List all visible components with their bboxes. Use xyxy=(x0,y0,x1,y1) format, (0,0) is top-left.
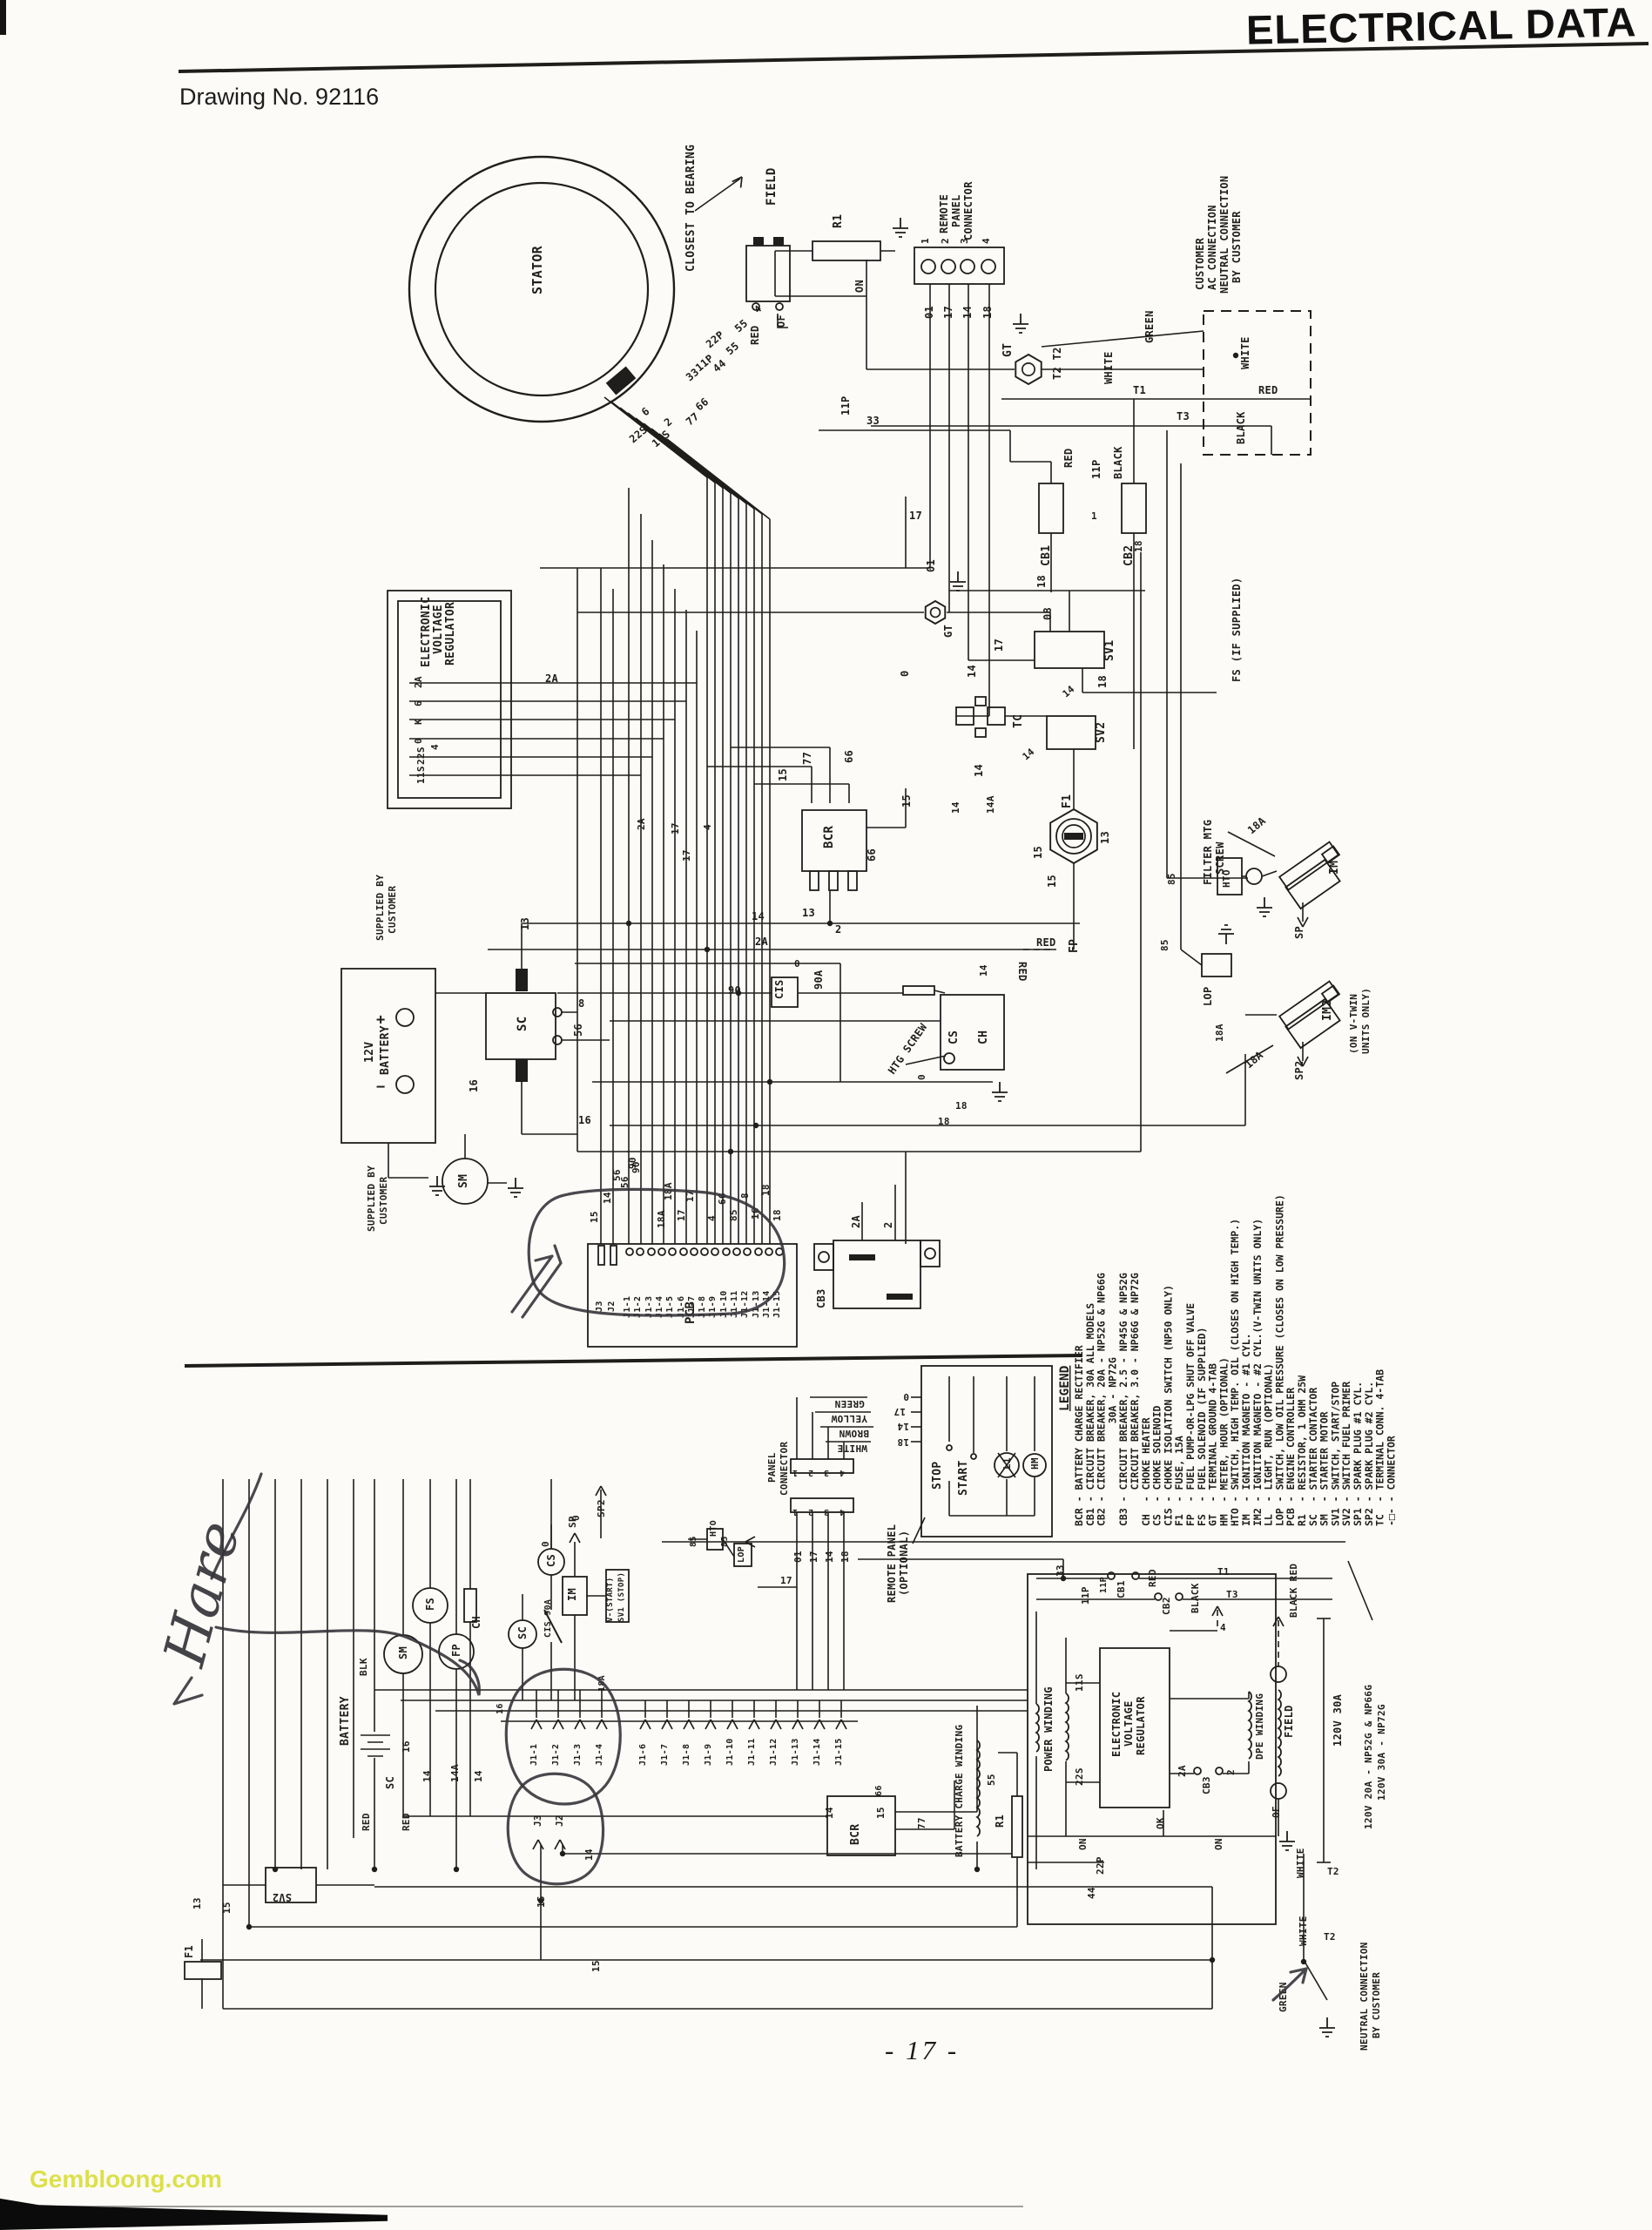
svg-text:01: 01 xyxy=(792,1551,804,1563)
svg-text:SP: SP xyxy=(1293,926,1305,939)
svg-text:14: 14 xyxy=(824,1551,835,1563)
svg-text:66: 66 xyxy=(843,750,855,763)
svg-text:SV2: SV2 xyxy=(1095,722,1108,743)
page-number: - 17 - xyxy=(885,2035,959,2066)
svg-text:LEGEND: LEGEND xyxy=(1058,1365,1072,1411)
schematic-canvas: STATORCLOSEST TO BEARINGFIELDREDOF55422S… xyxy=(0,0,1652,2230)
svg-text:3: 3 xyxy=(959,238,970,244)
svg-text:15: 15 xyxy=(589,1211,600,1223)
svg-text:J1-13: J1-13 xyxy=(791,1738,800,1766)
svg-text:SM: SM xyxy=(397,1646,409,1659)
svg-text:18: 18 xyxy=(760,1184,772,1196)
svg-text:14A: 14A xyxy=(449,1764,461,1782)
svg-text:IM: IM xyxy=(1328,861,1341,875)
svg-text:SV1 (STOP): SV1 (STOP) xyxy=(617,1572,626,1622)
svg-text:LOP: LOP xyxy=(1202,986,1214,1006)
svg-text:120V 20A - NP52G & NP66G: 120V 20A - NP52G & NP66G xyxy=(1363,1685,1374,1829)
svg-text:WHITE: WHITE xyxy=(1295,1848,1306,1878)
svg-text:BLACK: BLACK xyxy=(1190,1583,1201,1613)
svg-text:17: 17 xyxy=(909,510,922,522)
svg-text:14: 14 xyxy=(897,1421,909,1432)
svg-text:BY CUSTOMER: BY CUSTOMER xyxy=(1231,211,1243,283)
svg-text:1: 1 xyxy=(920,238,931,244)
svg-text:17: 17 xyxy=(670,822,681,835)
svg-text:REMOTE: REMOTE xyxy=(938,194,950,233)
svg-text:15: 15 xyxy=(221,1902,233,1914)
svg-text:77: 77 xyxy=(916,1817,927,1829)
svg-text:R1: R1 xyxy=(994,1814,1006,1828)
svg-text:18: 18 xyxy=(1096,675,1109,688)
svg-text:FIELD: FIELD xyxy=(1283,1705,1295,1738)
svg-text:J1-1: J1-1 xyxy=(529,1744,539,1766)
svg-text:RED: RED xyxy=(749,325,761,345)
svg-text:−: − xyxy=(376,1078,386,1096)
svg-text:BATTERY CHARGE WINDING: BATTERY CHARGE WINDING xyxy=(954,1725,965,1857)
svg-text:4: 4 xyxy=(752,303,765,315)
svg-text:55: 55 xyxy=(724,340,742,357)
svg-text:18A: 18A xyxy=(1245,814,1269,837)
svg-text:BLACK: BLACK xyxy=(1112,446,1124,479)
svg-text:66: 66 xyxy=(874,1785,884,1796)
svg-text:SC: SC xyxy=(516,1626,529,1639)
svg-text:CH: CH xyxy=(977,1031,990,1044)
svg-text:START: START xyxy=(957,1460,970,1496)
svg-text:Hare: Hare xyxy=(151,1514,253,1673)
svg-text:F1: F1 xyxy=(1061,794,1074,808)
svg-text:14: 14 xyxy=(966,665,978,678)
svg-text:14A: 14A xyxy=(985,795,996,814)
svg-text:85: 85 xyxy=(689,1536,698,1547)
watermark: Gembloong.com xyxy=(30,2166,222,2193)
svg-text:J1-11: J1-11 xyxy=(747,1738,757,1766)
svg-text:J1-6: J1-6 xyxy=(638,1744,648,1766)
svg-text:REGULATOR: REGULATOR xyxy=(444,602,457,666)
svg-text:ON: ON xyxy=(853,280,866,293)
svg-text:OK: OK xyxy=(1155,1817,1166,1829)
svg-text:BLK: BLK xyxy=(358,1658,369,1676)
svg-text:18: 18 xyxy=(955,1100,968,1112)
svg-text:RED: RED xyxy=(1016,962,1028,982)
svg-text:CB1: CB1 xyxy=(1040,545,1053,566)
svg-text:J1-8: J1-8 xyxy=(682,1744,691,1766)
svg-text:15: 15 xyxy=(536,1895,547,1908)
svg-text:BY CUSTOMER: BY CUSTOMER xyxy=(1371,1972,1382,2038)
svg-text:AC CONNECTION: AC CONNECTION xyxy=(1206,205,1218,290)
svg-text:BATTERY: BATTERY xyxy=(339,1696,352,1746)
svg-text:18A: 18A xyxy=(656,1210,667,1228)
svg-text:YELLOW: YELLOW xyxy=(831,1413,867,1424)
svg-text:J1-14: J1-14 xyxy=(813,1738,822,1766)
svg-text:J3: J3 xyxy=(532,1814,543,1827)
scan-artifact-corner xyxy=(0,0,6,35)
svg-text:GREEN: GREEN xyxy=(1143,310,1156,343)
svg-text:0: 0 xyxy=(916,1074,927,1080)
svg-text:11P: 11P xyxy=(1090,459,1102,479)
svg-text:WHITE: WHITE xyxy=(1102,351,1115,384)
svg-text:SC: SC xyxy=(516,1017,529,1031)
svg-text:14: 14 xyxy=(950,801,961,814)
svg-text:RED: RED xyxy=(401,1813,412,1831)
svg-text:22P: 22P xyxy=(1095,1856,1106,1875)
svg-text:90A: 90A xyxy=(813,970,825,990)
svg-text:8: 8 xyxy=(578,997,585,1010)
svg-text:56: 56 xyxy=(619,1176,630,1188)
svg-text:18A: 18A xyxy=(1214,1024,1225,1042)
svg-text:CB2: CB2 xyxy=(1161,1597,1172,1615)
svg-text:(OPTIONAL): (OPTIONAL) xyxy=(898,1531,910,1596)
svg-text:VOLTAGE: VOLTAGE xyxy=(1123,1700,1135,1747)
svg-text:SP: SP xyxy=(567,1516,578,1528)
svg-text:16: 16 xyxy=(468,1079,480,1092)
svg-text:T3: T3 xyxy=(1177,410,1190,422)
svg-text:ON: ON xyxy=(1077,1838,1089,1850)
svg-text:14: 14 xyxy=(1061,683,1077,699)
svg-text:18: 18 xyxy=(772,1209,783,1221)
svg-text:CH: CH xyxy=(470,1616,482,1629)
svg-text:WHITE: WHITE xyxy=(1298,1916,1309,1946)
svg-text:CB1: CB1 xyxy=(1116,1580,1127,1598)
svg-text:HTO: HTO xyxy=(709,1520,718,1537)
svg-text:HTG SCREW: HTG SCREW xyxy=(886,1021,930,1077)
svg-text:SP2: SP2 xyxy=(1293,1060,1305,1080)
svg-text:2A: 2A xyxy=(1177,1765,1188,1777)
svg-text:14: 14 xyxy=(961,306,974,319)
svg-text:CUSTOMER: CUSTOMER xyxy=(378,1177,389,1225)
svg-text:33: 33 xyxy=(1055,1564,1066,1577)
svg-text:4: 4 xyxy=(839,1507,845,1517)
svg-text:15: 15 xyxy=(900,794,913,808)
svg-text:VOLTAGE: VOLTAGE xyxy=(432,605,445,654)
svg-text:T2 T2: T2 T2 xyxy=(1051,347,1063,380)
svg-text:8: 8 xyxy=(739,1193,751,1199)
svg-text:13: 13 xyxy=(192,1897,203,1909)
svg-text:85: 85 xyxy=(1166,873,1177,885)
svg-text:PANEL: PANEL xyxy=(950,194,962,227)
svg-text:CONNECTOR: CONNECTOR xyxy=(779,1442,790,1496)
svg-text:CONNECTOR: CONNECTOR xyxy=(962,181,974,240)
svg-text:14: 14 xyxy=(824,1807,835,1819)
svg-text:2: 2 xyxy=(808,1507,813,1517)
svg-text:14: 14 xyxy=(583,1848,595,1861)
svg-text:ELECTRONIC: ELECTRONIC xyxy=(420,597,433,667)
svg-text:17: 17 xyxy=(676,1209,687,1221)
svg-text:NEUTRAL CONNECTION: NEUTRAL CONNECTION xyxy=(1359,1942,1370,2051)
svg-text:T3: T3 xyxy=(1226,1589,1238,1600)
svg-text:11P: 11P xyxy=(1080,1586,1091,1605)
svg-text:T1: T1 xyxy=(1133,384,1146,396)
svg-text:RED: RED xyxy=(1036,936,1056,949)
svg-text:HTO: HTO xyxy=(1221,869,1232,888)
svg-text:15: 15 xyxy=(1046,875,1058,888)
svg-text:66: 66 xyxy=(866,848,878,862)
svg-text:17: 17 xyxy=(993,639,1005,652)
svg-text:REMOTE PANEL: REMOTE PANEL xyxy=(886,1524,898,1603)
svg-text:HM: HM xyxy=(1029,1457,1041,1470)
svg-text:IM: IM xyxy=(566,1588,578,1601)
svg-text:BLACK RED: BLACK RED xyxy=(1288,1564,1299,1618)
svg-text:BLACK: BLACK xyxy=(1235,411,1247,444)
svg-text:SV2: SV2 xyxy=(272,1891,292,1903)
svg-text:J1-7: J1-7 xyxy=(660,1744,670,1766)
svg-text:4: 4 xyxy=(1220,1622,1226,1633)
svg-text:FP: FP xyxy=(450,1644,462,1657)
svg-text:J1-10: J1-10 xyxy=(725,1738,735,1766)
svg-text:85: 85 xyxy=(1159,939,1170,951)
svg-text:01: 01 xyxy=(923,306,935,319)
svg-text:CUSTOMER: CUSTOMER xyxy=(1194,237,1206,290)
svg-text:CIS: CIS xyxy=(773,979,786,999)
svg-text:BCR: BCR xyxy=(822,826,836,848)
svg-text:PANEL: PANEL xyxy=(766,1452,778,1483)
svg-text:F1: F1 xyxy=(183,1945,195,1958)
svg-text:22S: 22S xyxy=(415,747,427,765)
svg-text:85: 85 xyxy=(720,1536,730,1547)
svg-text:SM: SM xyxy=(457,1174,470,1188)
svg-text:12V: 12V xyxy=(363,1042,376,1063)
svg-text:FILTER MTG: FILTER MTG xyxy=(1202,820,1214,885)
svg-text:90: 90 xyxy=(630,1161,642,1173)
svg-text:J1-15: J1-15 xyxy=(834,1738,844,1766)
svg-text:-□- - CONNECTOR: -□- - CONNECTOR xyxy=(1385,1436,1397,1526)
svg-text:2: 2 xyxy=(808,1468,813,1477)
svg-text:14: 14 xyxy=(602,1192,613,1204)
svg-text:16: 16 xyxy=(578,1114,591,1126)
svg-text:55: 55 xyxy=(732,317,751,334)
svg-text:CB3: CB3 xyxy=(1201,1776,1212,1794)
svg-text:J2: J2 xyxy=(554,1814,565,1827)
svg-text:17: 17 xyxy=(681,849,692,862)
svg-text:T2: T2 xyxy=(1327,1866,1339,1877)
svg-text:SUPPLIED BY: SUPPLIED BY xyxy=(366,1166,377,1232)
svg-text:RED: RED xyxy=(1258,384,1278,396)
svg-text:4: 4 xyxy=(702,824,713,830)
svg-text:FP: FP xyxy=(1068,939,1081,953)
svg-text:J3: J3 xyxy=(595,1301,604,1312)
svg-text:J1-12: J1-12 xyxy=(740,1290,750,1318)
svg-text:J1-9: J1-9 xyxy=(704,1744,713,1766)
svg-text:4: 4 xyxy=(839,1468,845,1477)
svg-text:17: 17 xyxy=(780,1575,792,1586)
svg-text:CS: CS xyxy=(545,1554,557,1567)
svg-text:BATTERY: BATTERY xyxy=(379,1025,392,1075)
svg-text:CB3: CB3 xyxy=(815,1288,827,1308)
svg-text:REGULATOR: REGULATOR xyxy=(1135,1696,1147,1755)
svg-text:22S: 22S xyxy=(1074,1767,1085,1786)
svg-text:CS: CS xyxy=(947,1031,961,1044)
svg-text:FIELD: FIELD xyxy=(765,167,779,206)
svg-text:11P: 11P xyxy=(1099,1577,1109,1593)
svg-text:UNITS ONLY): UNITS ONLY) xyxy=(1360,988,1372,1054)
svg-text:1: 1 xyxy=(792,1507,798,1517)
manual-page: ELECTRICAL DATA Drawing No. 92116 STATOR… xyxy=(0,0,1652,2230)
svg-text:11S: 11S xyxy=(415,766,427,784)
svg-text:GT: GT xyxy=(1001,343,1015,357)
svg-text:J1-13: J1-13 xyxy=(752,1290,761,1318)
svg-text:2A: 2A xyxy=(413,676,424,688)
svg-text:RED: RED xyxy=(361,1813,372,1831)
svg-text:STATOR: STATOR xyxy=(529,245,545,294)
svg-text:13: 13 xyxy=(519,917,531,930)
svg-text:11P: 11P xyxy=(839,395,852,416)
svg-text:17: 17 xyxy=(942,306,954,319)
svg-text:2: 2 xyxy=(882,1221,894,1228)
svg-text:CUSTOMER: CUSTOMER xyxy=(387,886,398,934)
svg-text:18: 18 xyxy=(839,1551,851,1563)
svg-text:17: 17 xyxy=(808,1551,819,1563)
svg-text:08: 08 xyxy=(1042,607,1054,620)
svg-text:BCR: BCR xyxy=(849,1824,862,1845)
svg-text:2: 2 xyxy=(662,416,675,429)
svg-text:BROWN: BROWN xyxy=(839,1428,869,1439)
svg-text:18: 18 xyxy=(1035,575,1048,588)
svg-text:CLOSEST TO BEARING: CLOSEST TO BEARING xyxy=(684,145,698,272)
svg-text:0: 0 xyxy=(903,1391,909,1402)
svg-text:4: 4 xyxy=(429,744,441,750)
svg-text:14: 14 xyxy=(1021,746,1037,762)
svg-text:18: 18 xyxy=(938,1116,950,1127)
svg-text:90: 90 xyxy=(728,984,741,997)
svg-text:16: 16 xyxy=(496,1703,505,1714)
svg-text:2A: 2A xyxy=(850,1214,862,1228)
svg-text:2A: 2A xyxy=(636,818,647,830)
svg-text:FS (IF SUPPLIED): FS (IF SUPPLIED) xyxy=(1231,578,1243,682)
svg-text:14: 14 xyxy=(473,1770,484,1782)
svg-text:1: 1 xyxy=(1091,510,1097,522)
svg-text:14: 14 xyxy=(978,964,989,976)
svg-text:3: 3 xyxy=(824,1468,829,1477)
svg-text:15: 15 xyxy=(590,1960,602,1972)
svg-text:3: 3 xyxy=(824,1507,829,1517)
svg-text:OF: OF xyxy=(775,314,787,328)
svg-text:1: 1 xyxy=(792,1468,798,1477)
svg-text:TC: TC xyxy=(1012,714,1025,728)
scan-artifact-line xyxy=(0,2206,1023,2207)
svg-text:WHITE: WHITE xyxy=(1239,336,1251,369)
svg-text:J1-12: J1-12 xyxy=(769,1738,779,1766)
svg-text:56: 56 xyxy=(572,1024,584,1037)
svg-text:33: 33 xyxy=(866,415,880,427)
svg-text:J1-4: J1-4 xyxy=(595,1744,604,1766)
svg-text:55: 55 xyxy=(986,1774,997,1786)
svg-text:85: 85 xyxy=(728,1209,739,1221)
svg-text:14: 14 xyxy=(973,764,985,777)
svg-text:77: 77 xyxy=(801,752,813,765)
svg-text:0: 0 xyxy=(540,1541,551,1547)
svg-text:(ON V-TWIN: (ON V-TWIN xyxy=(1348,994,1359,1054)
svg-text:IM2: IM2 xyxy=(1321,1000,1334,1021)
svg-text:15: 15 xyxy=(777,768,789,781)
svg-text:ON: ON xyxy=(1213,1838,1224,1850)
svg-text:16: 16 xyxy=(401,1740,412,1753)
svg-text:6: 6 xyxy=(413,700,424,706)
svg-text:0: 0 xyxy=(899,670,911,677)
svg-text:NEUTRAL CONNECTION: NEUTRAL CONNECTION xyxy=(1218,176,1231,294)
svg-text:WHITE: WHITE xyxy=(837,1443,867,1454)
svg-text:2: 2 xyxy=(1225,1769,1237,1775)
svg-text:14: 14 xyxy=(752,910,765,922)
svg-text:J1-2: J1-2 xyxy=(551,1744,561,1766)
svg-text:18: 18 xyxy=(1133,540,1144,552)
svg-text:77: 77 xyxy=(684,410,702,428)
svg-text:22P: 22P xyxy=(704,328,726,350)
svg-text:SV1: SV1 xyxy=(1103,640,1116,661)
svg-text:13: 13 xyxy=(802,907,815,919)
svg-text:STOP: STOP xyxy=(931,1461,944,1490)
svg-text:0: 0 xyxy=(794,958,800,970)
svg-text:L1: L1 xyxy=(1001,1457,1013,1470)
svg-text:2: 2 xyxy=(940,238,951,244)
svg-text:CIS 90A: CIS 90A xyxy=(543,1599,553,1638)
svg-text:2A: 2A xyxy=(755,936,769,948)
svg-text:GREEN: GREEN xyxy=(834,1398,865,1409)
svg-text:SC: SC xyxy=(384,1776,396,1789)
svg-text:GT: GT xyxy=(942,625,954,638)
svg-text:11S: 11S xyxy=(1074,1673,1085,1692)
svg-text:0: 0 xyxy=(413,738,424,744)
svg-text:15: 15 xyxy=(875,1807,887,1819)
svg-text:T1: T1 xyxy=(1217,1566,1230,1578)
svg-text:J1-3: J1-3 xyxy=(573,1744,583,1766)
svg-text:ELECTRONIC: ELECTRONIC xyxy=(1110,1692,1123,1757)
svg-text:18: 18 xyxy=(981,306,994,319)
svg-text:RED: RED xyxy=(1062,448,1075,468)
svg-text:SUPPLIED BY: SUPPLIED BY xyxy=(374,875,386,941)
svg-text:44: 44 xyxy=(1086,1887,1097,1899)
svg-text:FS: FS xyxy=(424,1598,436,1611)
svg-text:01: 01 xyxy=(925,559,937,572)
svg-text:V-(START): V-(START) xyxy=(606,1578,615,1622)
svg-text:OF: OF xyxy=(1271,1806,1282,1818)
svg-text:2A: 2A xyxy=(545,672,559,685)
svg-text:K: K xyxy=(413,719,424,725)
svg-text:14: 14 xyxy=(421,1770,433,1782)
svg-text:SP2: SP2 xyxy=(596,1499,607,1517)
svg-text:RED: RED xyxy=(1147,1569,1158,1587)
svg-text:R1: R1 xyxy=(832,214,845,228)
svg-text:18: 18 xyxy=(897,1436,909,1448)
svg-text:120V 30A: 120V 30A xyxy=(1332,1693,1344,1747)
svg-text:17: 17 xyxy=(893,1406,906,1417)
svg-text:15: 15 xyxy=(1032,846,1044,859)
svg-text:66: 66 xyxy=(693,395,711,413)
svg-text:2: 2 xyxy=(835,923,842,936)
svg-text:POWER WINDING: POWER WINDING xyxy=(1042,1686,1055,1772)
svg-text:DPE WINDING: DPE WINDING xyxy=(1254,1693,1265,1760)
svg-text:T2: T2 xyxy=(1324,1931,1336,1943)
svg-text:LOP: LOP xyxy=(737,1546,746,1563)
svg-text:4: 4 xyxy=(706,1215,718,1221)
svg-text:120V 30A - NP72G: 120V 30A - NP72G xyxy=(1376,1704,1387,1801)
svg-text:13: 13 xyxy=(1099,831,1111,844)
svg-text:J2: J2 xyxy=(607,1301,617,1312)
svg-text:6: 6 xyxy=(639,405,652,419)
svg-text:4: 4 xyxy=(981,238,992,244)
